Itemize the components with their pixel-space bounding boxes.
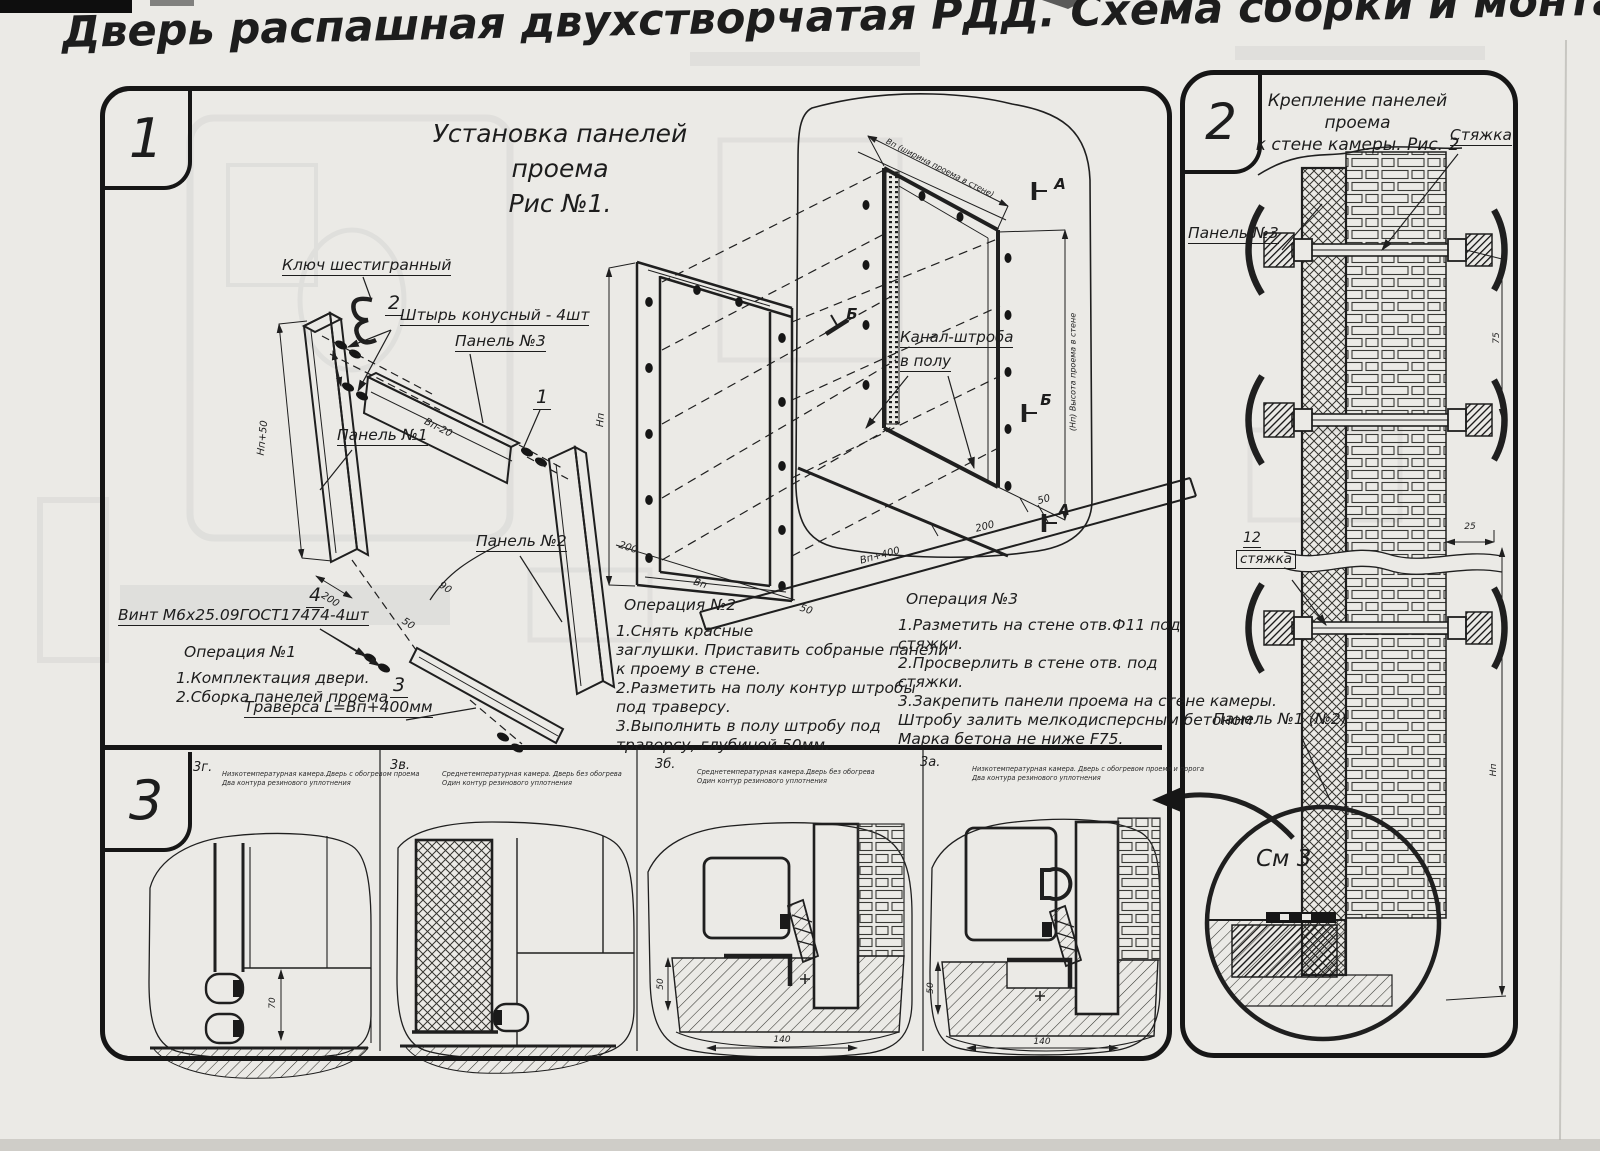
dim-50-3b: 50 bbox=[656, 978, 666, 989]
section-mark-a-bottom: А bbox=[1058, 501, 1070, 519]
label-see-detail3: См 3 bbox=[1256, 846, 1311, 872]
callout-3: 3 bbox=[390, 674, 408, 698]
detail-3v-id: 3в. bbox=[390, 758, 410, 773]
fig1-title: Установка панелей проема Рис №1. bbox=[390, 116, 730, 221]
dim-140-3b: 140 bbox=[773, 1035, 790, 1045]
label-panel3-s2: Панель №3 bbox=[1188, 224, 1279, 244]
label-hex-key: Ключ шестигранный bbox=[282, 256, 451, 276]
fig2-title: Крепление панелей проема к стене камеры.… bbox=[1240, 90, 1475, 156]
callout-1: 1 bbox=[533, 386, 551, 410]
section-1-3-border bbox=[100, 86, 1172, 1061]
label-screw: Винт М6х25.09ГОСТ17474-4шт bbox=[118, 606, 369, 626]
dim-70-3g: 70 bbox=[268, 997, 278, 1008]
section-mark-b-left: Б bbox=[846, 305, 857, 323]
callout-12: 12 bbox=[1243, 530, 1261, 548]
dim-np-frame: Нп bbox=[595, 413, 607, 428]
label-channel-line2: в полу bbox=[900, 352, 951, 372]
section-2-border bbox=[1180, 70, 1518, 1058]
label-panel2: Панель №2 bbox=[476, 532, 567, 552]
label-tie-boxed: стяжка bbox=[1236, 550, 1296, 569]
label-tie: Стяжка bbox=[1450, 126, 1512, 146]
label-pin: Штырь конусный - 4шт bbox=[400, 306, 589, 326]
detail-3a-id: 3а. bbox=[920, 755, 940, 770]
dim-opening-height: (Нп) Высота проема в стене bbox=[1069, 313, 1078, 431]
label-channel-line1: Канал-штроба bbox=[900, 328, 1013, 348]
detail-3b-caption: Среднетемпературная камера.Дверь без обо… bbox=[697, 768, 875, 786]
detail-3a-caption: Низкотемпературная камера. Дверь с обогр… bbox=[972, 765, 1204, 783]
section-mark-b-right: Б bbox=[1040, 391, 1051, 409]
label-panel12: Панель №1 (№2) bbox=[1213, 710, 1347, 728]
dim-50-3a: 50 bbox=[926, 982, 936, 993]
label-panel1: Панель №1 bbox=[337, 426, 428, 446]
dim-75: 75 bbox=[1492, 332, 1502, 343]
section-1-badge: 1 bbox=[104, 90, 192, 190]
section-3-badge: 3 bbox=[104, 752, 192, 852]
section-mark-a-top: А bbox=[1054, 175, 1066, 193]
detail-3v-caption: Среднетемпературная камера. Дверь без об… bbox=[442, 770, 622, 788]
detail-3g-id: 3г. bbox=[193, 760, 212, 775]
dim-140-3a: 140 bbox=[1033, 1037, 1050, 1047]
dim-25: 25 bbox=[1464, 522, 1475, 532]
detail-3b-id: 3б. bbox=[655, 757, 675, 772]
dim-np-s2: Нп bbox=[1489, 764, 1499, 777]
operation-1-text: Операция №1 1.Комплектация двери. 2.Сбор… bbox=[176, 643, 388, 707]
scanned-assembly-drawing-sheet: Дверь распашная двухстворчатая РДД. Схем… bbox=[0, 0, 1600, 1151]
label-panel3: Панель №3 bbox=[455, 332, 546, 352]
